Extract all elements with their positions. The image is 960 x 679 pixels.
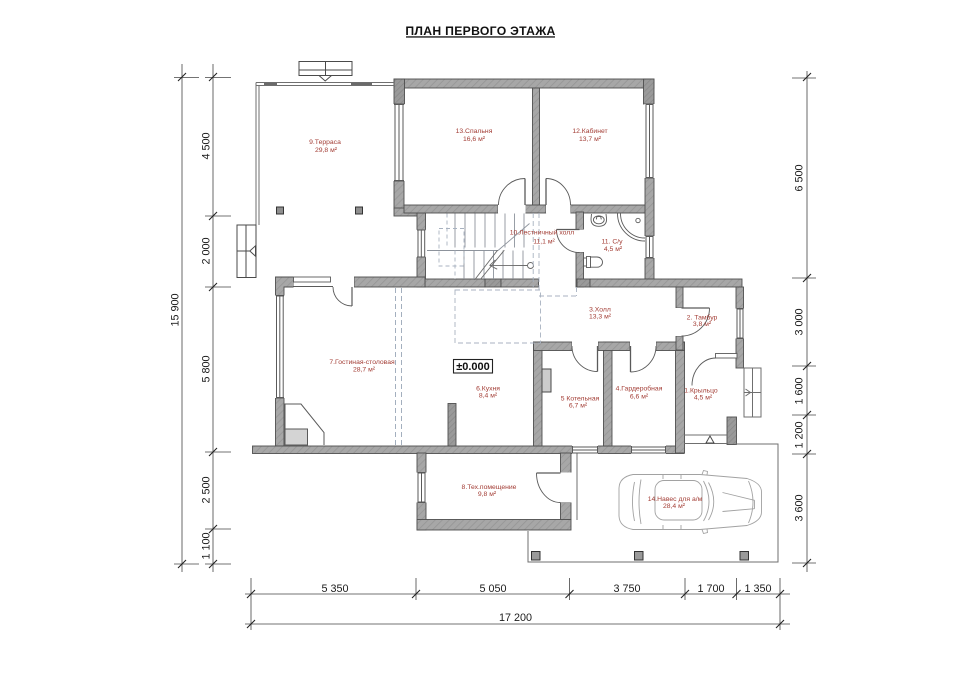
svg-text:9.Терраса: 9.Терраса	[309, 139, 341, 146]
svg-text:1 600: 1 600	[794, 377, 806, 404]
svg-text:4 500: 4 500	[201, 132, 213, 159]
svg-text:1 200: 1 200	[794, 421, 806, 448]
svg-text:29,8 м²: 29,8 м²	[315, 147, 338, 154]
svg-text:13,3 м²: 13,3 м²	[589, 314, 612, 321]
svg-text:8.Тех.помещение: 8.Тех.помещение	[462, 484, 517, 491]
svg-text:1.Крыльцо: 1.Крыльцо	[684, 388, 718, 395]
svg-text:17 200: 17 200	[499, 612, 532, 624]
svg-text:1 100: 1 100	[201, 532, 213, 559]
svg-text:10.Лестничный холл: 10.Лестничный холл	[510, 229, 575, 237]
svg-text:6 500: 6 500	[794, 164, 806, 191]
svg-text:1 350: 1 350	[744, 583, 771, 595]
svg-text:7.Гостиная-столовая: 7.Гостиная-столовая	[329, 359, 395, 366]
svg-text:8,4 м²: 8,4 м²	[479, 393, 498, 400]
svg-text:5 350: 5 350	[321, 583, 348, 595]
svg-text:4,5 м²: 4,5 м²	[694, 395, 713, 402]
svg-text:2 000: 2 000	[201, 237, 213, 264]
svg-text:9,8 м²: 9,8 м²	[478, 491, 497, 498]
svg-text:3 000: 3 000	[794, 308, 806, 335]
svg-text:16,6 м²: 16,6 м²	[463, 136, 486, 143]
svg-text:5 050: 5 050	[479, 583, 506, 595]
svg-text:1 700: 1 700	[697, 583, 724, 595]
svg-text:13.Спальня: 13.Спальня	[456, 128, 493, 135]
svg-text:ПЛАН ПЕРВОГО ЭТАЖА: ПЛАН ПЕРВОГО ЭТАЖА	[405, 24, 555, 38]
svg-text:4.Гардеробная: 4.Гардеробная	[616, 385, 663, 393]
svg-text:2 500: 2 500	[201, 476, 213, 503]
svg-text:6,6 м²: 6,6 м²	[630, 394, 649, 401]
svg-text:5 800: 5 800	[201, 355, 213, 382]
svg-text:±0.000: ±0.000	[456, 361, 490, 373]
svg-text:15 900: 15 900	[170, 293, 182, 326]
svg-text:14.Навес для а/м: 14.Навес для а/м	[648, 496, 703, 503]
svg-text:3 600: 3 600	[794, 494, 806, 521]
svg-text:3,8 м²: 3,8 м²	[693, 321, 712, 328]
svg-text:5 Котельная: 5 Котельная	[561, 396, 600, 403]
svg-text:3 750: 3 750	[613, 583, 640, 595]
svg-text:28,4 м²: 28,4 м²	[663, 503, 686, 510]
svg-text:13,7 м²: 13,7 м²	[579, 136, 602, 143]
svg-text:6,7 м²: 6,7 м²	[569, 403, 588, 410]
svg-text:3.Холл: 3.Холл	[589, 307, 611, 314]
svg-text:28,7 м²: 28,7 м²	[353, 367, 376, 374]
svg-text:6.Кухня: 6.Кухня	[476, 386, 500, 393]
svg-text:11,1 м²: 11,1 м²	[533, 239, 555, 246]
svg-text:12.Кабинет: 12.Кабинет	[572, 127, 607, 135]
svg-text:4,5 м²: 4,5 м²	[604, 246, 623, 253]
svg-text:11. С/у: 11. С/у	[601, 239, 623, 246]
